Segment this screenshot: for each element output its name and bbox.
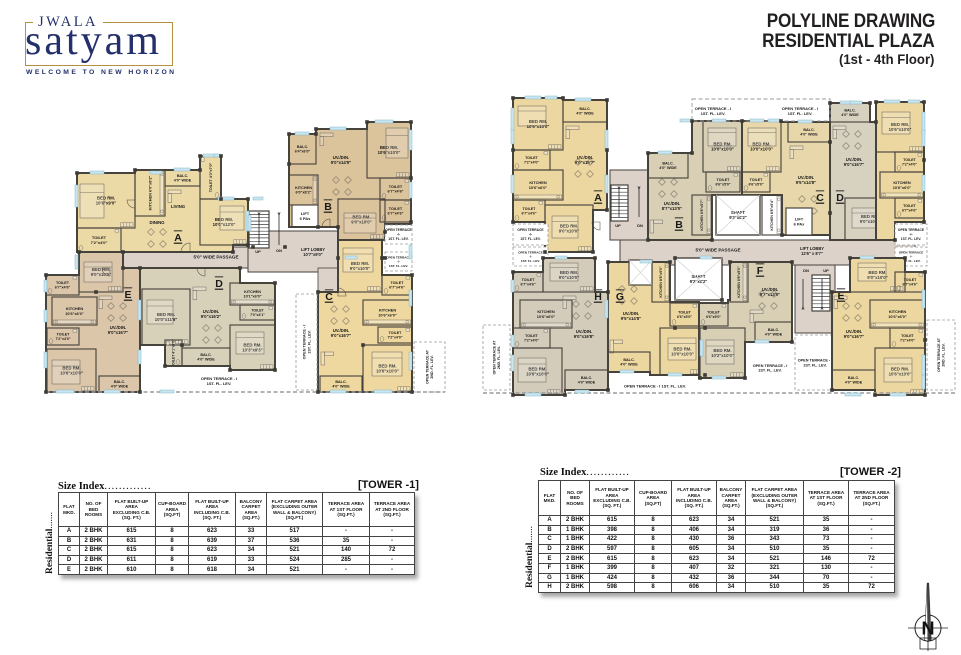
svg-text:7'2"x4'0": 7'2"x4'0" [524, 161, 539, 165]
svg-text:TOILET: TOILET [56, 281, 70, 285]
svg-text:UV./DIN.: UV./DIN. [798, 175, 815, 180]
svg-text:BALC.: BALC. [579, 107, 590, 111]
svg-text:KITCHEN 6'0"x8'2": KITCHEN 6'0"x8'2" [147, 175, 152, 210]
svg-text:4'0" WIDE: 4'0" WIDE [841, 113, 859, 117]
svg-text:TOILET 4'1"x7'0": TOILET 4'1"x7'0" [172, 339, 176, 367]
svg-text:KITCHEN 6'8"x5'0": KITCHEN 6'8"x5'0" [737, 266, 741, 298]
svg-text:6'7"x4'6": 6'7"x4'6" [389, 286, 405, 290]
svg-text:TOILET: TOILET [389, 331, 403, 335]
svg-text:10'6"x6'0": 10'6"x6'0" [529, 185, 548, 190]
svg-text:TOILET: TOILET [523, 207, 537, 211]
svg-text:7'2"x4'0": 7'2"x4'0" [900, 339, 915, 343]
svg-text:4'0" WIDE: 4'0" WIDE [578, 381, 596, 385]
svg-text:TOILET 4'3"x7'0": TOILET 4'3"x7'0" [209, 162, 213, 192]
svg-text:9'0"x14'9": 9'0"x14'9" [331, 160, 351, 165]
svg-text:KITCHEN 8'8"x5'4": KITCHEN 8'8"x5'4" [770, 199, 774, 231]
svg-text:9'0"x16'2": 9'0"x16'2" [201, 314, 221, 319]
svg-text:UV./DIN.: UV./DIN. [623, 311, 640, 316]
svg-text:DN: DN [803, 268, 809, 273]
svg-text:BALC.: BALC. [200, 353, 211, 357]
svg-text:B: B [675, 219, 683, 231]
svg-text:OPEN TERRACE - I: OPEN TERRACE - I [798, 358, 833, 362]
svg-text:6'6"x5'0": 6'6"x5'0" [677, 315, 692, 319]
svg-text:LIVING: LIVING [171, 204, 186, 209]
svg-text:6'6"x5'0": 6'6"x5'0" [715, 183, 730, 187]
svg-text:E: E [124, 289, 131, 301]
svg-text:10'0"x10'0": 10'0"x10'0" [711, 147, 734, 152]
svg-text:6'7"x4'6": 6'7"x4'6" [521, 212, 536, 216]
svg-text:TOILET: TOILET [903, 204, 917, 208]
svg-text:9'0"x16'8": 9'0"x16'8" [574, 334, 594, 339]
svg-text:10'6"x6'0": 10'6"x6'0" [378, 312, 397, 317]
svg-text:10'1"x6'0": 10'1"x6'0" [243, 295, 261, 299]
svg-text:6'0"x8'2": 6'0"x8'2" [296, 191, 312, 195]
svg-text:OPEN TERRACE: OPEN TERRACE [898, 228, 925, 232]
svg-text:TOILET: TOILET [525, 334, 539, 338]
svg-text:BALC.: BALC. [844, 108, 855, 112]
svg-text:2ND. FL. LEV.: 2ND. FL. LEV. [430, 355, 434, 378]
svg-text:A: A [174, 232, 182, 244]
svg-text:6'7"x4'6": 6'7"x4'6" [388, 212, 404, 216]
svg-text:4'0" WIDE: 4'0" WIDE [332, 385, 350, 389]
svg-text:8'7"x13'0": 8'7"x13'0" [662, 206, 682, 211]
svg-text:9'5"x14'8": 9'5"x14'8" [796, 180, 816, 185]
svg-text:BALC.: BALC. [177, 174, 188, 178]
svg-text:-I-: -I- [909, 233, 912, 237]
svg-text:TOILET: TOILET [525, 156, 539, 160]
svg-text:7'2"x4'0": 7'2"x4'0" [387, 336, 402, 340]
svg-text:DINING: DINING [149, 220, 165, 225]
svg-text:TOILET: TOILET [904, 278, 918, 282]
svg-text:UV./DIN.: UV./DIN. [762, 287, 779, 292]
svg-text:OPEN TERRACE - I 1ST. FL. LE: OPEN TERRACE - I 1ST. FL. LEV. [624, 383, 686, 388]
svg-text:4'0" WIDE: 4'0" WIDE [620, 363, 638, 367]
svg-text:-I-: -I- [529, 233, 532, 237]
svg-text:6'7"x4'6": 6'7"x4'6" [902, 283, 917, 287]
svg-text:BALC.: BALC. [623, 358, 634, 362]
svg-text:10'6"x6'0": 10'6"x6'0" [65, 311, 84, 316]
svg-text:1ST. FL. LEV.: 1ST. FL. LEV. [389, 264, 409, 268]
svg-text:TOILET: TOILET [390, 281, 404, 285]
svg-text:TOILET: TOILET [389, 207, 403, 211]
svg-text:F: F [757, 265, 764, 277]
svg-text:OPEN TERRACE - I: OPEN TERRACE - I [753, 364, 788, 368]
svg-text:A: A [594, 192, 602, 204]
svg-text:BALC.: BALC. [335, 380, 346, 384]
svg-text:B: B [324, 201, 332, 213]
svg-text:KITCHEN: KITCHEN [244, 290, 261, 294]
svg-text:1ST. FL. LEV.: 1ST. FL. LEV. [307, 330, 311, 354]
svg-text:BALC.: BALC. [114, 380, 125, 384]
svg-text:4'0" WIDE: 4'0" WIDE [174, 179, 192, 183]
svg-text:TOILET: TOILET [522, 278, 536, 282]
svg-text:TOILET: TOILET [903, 158, 917, 162]
svg-text:TOILET: TOILET [707, 311, 721, 315]
svg-text:9'2"x8'2": 9'2"x8'2" [690, 279, 708, 284]
svg-text:9'0"x16'7": 9'0"x16'7" [844, 162, 864, 167]
svg-text:TOILET: TOILET [678, 311, 692, 315]
svg-text:G: G [616, 291, 624, 303]
svg-text:9'0"x16'7": 9'0"x16'7" [331, 333, 351, 338]
svg-text:6'6"x5'0": 6'6"x5'0" [706, 315, 721, 319]
svg-text:UP: UP [823, 268, 829, 273]
svg-text:2ND. FL. LEV.: 2ND. FL. LEV. [497, 346, 501, 369]
svg-text:BALC.: BALC. [803, 128, 814, 132]
svg-text:7'0"x4'1": 7'0"x4'1" [250, 313, 265, 317]
svg-text:UV./DIN.: UV./DIN. [333, 155, 350, 160]
svg-text:1ST. FL. LEV.: 1ST. FL. LEV. [803, 363, 827, 367]
svg-text:BALC.: BALC. [581, 376, 592, 380]
svg-text:6'6"x5'0": 6'6"x5'0" [748, 183, 763, 187]
svg-text:TOILET: TOILET [57, 333, 71, 337]
svg-text:6'4"x6'0": 6'4"x6'0" [295, 150, 311, 154]
svg-text:7'2"x4'0": 7'2"x4'0" [91, 240, 108, 245]
svg-text:2ND. FL. LEV.: 2ND. FL. LEV. [942, 343, 946, 366]
svg-text:9'0"x16'7": 9'0"x16'7" [844, 334, 864, 339]
svg-text:BALC.: BALC. [768, 328, 779, 332]
svg-text:OPEN TERRACE AT: OPEN TERRACE AT [425, 349, 429, 384]
svg-text:KITCHEN: KITCHEN [295, 186, 312, 190]
svg-text:1ST. FL. LEV.: 1ST. FL. LEV. [758, 369, 782, 373]
svg-text:KITCHEN 8'8"x5'0": KITCHEN 8'8"x5'0" [659, 266, 663, 298]
svg-text:UV./DIN.: UV./DIN. [576, 329, 593, 334]
svg-text:1ST. FL. LEV.: 1ST. FL. LEV. [521, 259, 541, 263]
svg-text:4'0" WIDE: 4'0" WIDE [111, 385, 129, 389]
svg-text:ON: ON [276, 248, 282, 253]
svg-text:4'0" WIDE: 4'0" WIDE [800, 133, 818, 137]
svg-text:9'5"x14'8": 9'5"x14'8" [621, 316, 641, 321]
svg-text:UV./DIN.: UV./DIN. [846, 329, 863, 334]
svg-text:5'0" WIDE PASSAGE: 5'0" WIDE PASSAGE [193, 255, 238, 260]
svg-text:4'0" WIDE: 4'0" WIDE [197, 358, 215, 362]
svg-text:6'7"x4'6": 6'7"x4'6" [388, 190, 404, 194]
svg-text:UV./DIN.: UV./DIN. [846, 157, 863, 162]
svg-text:OPEN TERRACE AT: OPEN TERRACE AT [492, 340, 496, 375]
svg-text:9'0"x16'7": 9'0"x16'7" [108, 330, 128, 335]
svg-text:BALC.: BALC. [848, 376, 859, 380]
svg-text:D: D [215, 278, 223, 290]
svg-text:KITCHEN 6'8"x5'7": KITCHEN 6'8"x5'7" [700, 199, 704, 231]
svg-text:1ST. FL. LEV.: 1ST. FL. LEV. [701, 111, 726, 116]
svg-text:1ST. FL. LEV.: 1ST. FL. LEV. [207, 381, 232, 386]
svg-text:6'7"x4'6": 6'7"x4'6" [520, 283, 535, 287]
svg-text:BALC.: BALC. [662, 161, 673, 165]
svg-text:OPEN TERRACE AT: OPEN TERRACE AT [937, 337, 941, 372]
svg-text:6 PAs: 6 PAs [300, 216, 312, 221]
svg-text:1ST. FL. LEV.: 1ST. FL. LEV. [520, 237, 541, 241]
svg-text:6 PAx: 6 PAx [794, 221, 806, 226]
svg-text:TOILET: TOILET [251, 309, 264, 313]
svg-text:OPEN TERRACE: OPEN TERRACE [385, 228, 412, 232]
svg-text:UV./DIN.: UV./DIN. [333, 328, 350, 333]
svg-text:10'6"x6'0": 10'6"x6'0" [888, 314, 907, 319]
svg-text:10'0"x10'0": 10'0"x10'0" [750, 147, 773, 152]
svg-text:1ST. FL. LEV.: 1ST. FL. LEV. [788, 111, 813, 116]
svg-text:N: N [922, 619, 935, 639]
svg-text:9'2"x8'2": 9'2"x8'2" [729, 215, 747, 220]
svg-text:OPEN TERRACE: OPEN TERRACE [517, 228, 544, 232]
svg-text:TOILET: TOILET [750, 178, 764, 182]
svg-text:TOILET: TOILET [389, 185, 403, 189]
svg-text:TOILET: TOILET [901, 334, 915, 338]
svg-text:12'6" x 8'7": 12'6" x 8'7" [801, 251, 823, 256]
svg-text:UP: UP [615, 223, 621, 228]
svg-text:6'7"x4'6": 6'7"x4'6" [55, 286, 71, 290]
svg-text:TOILET: TOILET [717, 178, 731, 182]
svg-text:BALC.: BALC. [297, 145, 308, 149]
svg-text:4'0" WIDE: 4'0" WIDE [845, 381, 863, 385]
svg-text:1ST. FL. LEV.: 1ST. FL. LEV. [388, 237, 409, 241]
svg-text:10'7"x9'0": 10'7"x9'0" [303, 252, 323, 257]
svg-text:7'2"x4'0": 7'2"x4'0" [55, 337, 70, 341]
svg-text:C: C [816, 192, 824, 204]
svg-text:7'2"x4'0": 7'2"x4'0" [902, 163, 917, 167]
svg-text:10'6"x6'0": 10'6"x6'0" [537, 314, 556, 319]
svg-text:DN: DN [637, 223, 643, 228]
svg-text:D: D [836, 192, 844, 204]
svg-text:UP: UP [255, 249, 261, 254]
svg-text:UV./DIN.: UV./DIN. [664, 201, 681, 206]
svg-text:4'0" WIDE: 4'0" WIDE [576, 112, 594, 116]
svg-text:1ST. FL. LEV.: 1ST. FL. LEV. [901, 237, 922, 241]
svg-text:5'0" WIDE PASSAGE: 5'0" WIDE PASSAGE [695, 248, 740, 253]
svg-text:6'7"x4'6": 6'7"x4'6" [902, 209, 917, 213]
svg-text:4'0" WIDE: 4'0" WIDE [659, 166, 677, 170]
svg-text:7'2"x4'0": 7'2"x4'0" [524, 339, 539, 343]
svg-text:UV./DIN.: UV./DIN. [110, 325, 127, 330]
svg-text:-I-: -I- [397, 233, 400, 237]
svg-text:10'6"x6'0": 10'6"x6'0" [893, 185, 912, 190]
svg-text:4'0" WIDE: 4'0" WIDE [765, 333, 783, 337]
svg-text:UV./DIN.: UV./DIN. [203, 309, 220, 314]
svg-text:OPEN TERRACE - I: OPEN TERRACE - I [302, 325, 306, 360]
